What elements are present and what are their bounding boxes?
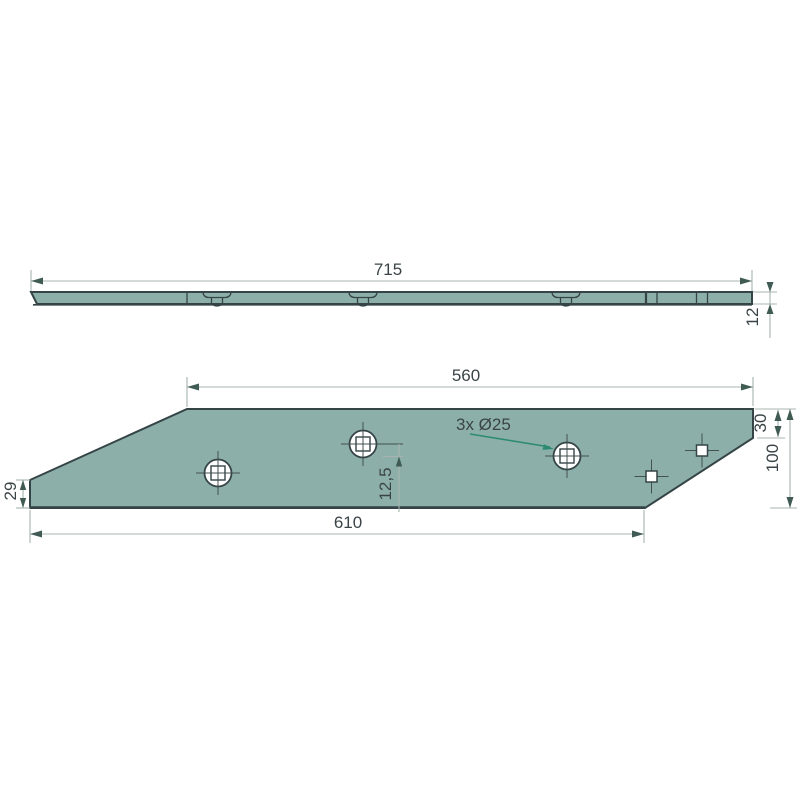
dim-arrow [740, 278, 752, 285]
technical-drawing: 715 12 [0, 0, 800, 800]
dim-text-bottom-width: 610 [334, 513, 362, 532]
dim-text-top-width: 560 [452, 366, 480, 385]
dim-arrow [741, 384, 753, 391]
dim-arrow [187, 384, 199, 391]
dim-arrow [20, 480, 26, 490]
dimension-top-width-560: 560 [187, 366, 753, 407]
dim-arrow [787, 497, 794, 508]
dim-arrow [775, 426, 782, 437]
dim-arrow [775, 410, 782, 421]
side-view: 715 12 [31, 260, 777, 338]
dim-arrow [787, 409, 794, 420]
dimension-thickness-12: 12 [743, 282, 777, 338]
dim-text-length: 715 [374, 260, 402, 279]
blade-profile-outline [31, 292, 752, 304]
dim-arrow [31, 278, 43, 285]
dimension-length-715: 715 [31, 260, 752, 291]
dim-text-thickness: 12 [743, 308, 762, 327]
dim-arrow [632, 531, 644, 538]
dim-arrow [30, 531, 42, 538]
dim-arrow [20, 498, 26, 508]
dim-arrow [767, 304, 774, 314]
dimension-bottom-width-610: 610 [30, 510, 644, 543]
hole-note-text: 3x Ø25 [456, 415, 511, 434]
front-view: 3x Ø25 560 30 100 [1, 366, 797, 543]
dim-text-height: 100 [763, 444, 782, 472]
dim-arrow [767, 282, 774, 292]
dimension-left-edge-29: 29 [1, 480, 30, 508]
dim-text-corner: 30 [751, 414, 770, 433]
dim-text-left-edge: 29 [1, 482, 20, 501]
dim-text-hole-offset: 12,5 [376, 467, 395, 500]
drawing-canvas: 715 12 [0, 0, 800, 800]
